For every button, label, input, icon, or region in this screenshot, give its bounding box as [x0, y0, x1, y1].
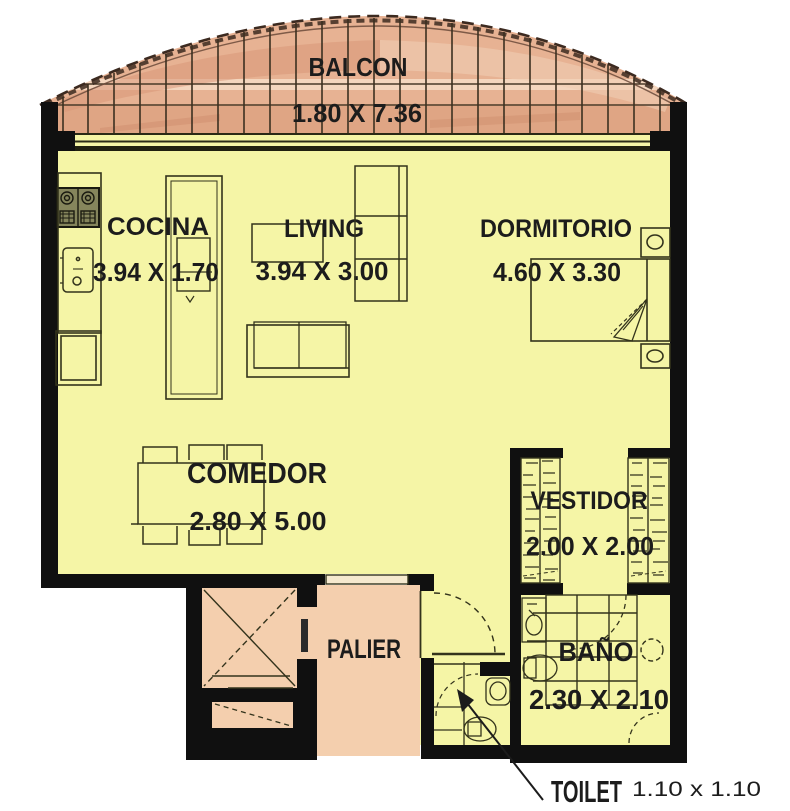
svg-text:TOILET: TOILET: [551, 774, 622, 809]
svg-text:BAÑO: BAÑO: [559, 636, 634, 667]
svg-text:3.94 X 1.70: 3.94 X 1.70: [93, 257, 219, 287]
svg-text:DORMITORIO: DORMITORIO: [480, 215, 632, 243]
svg-text:4.60 X 3.30: 4.60 X 3.30: [493, 257, 621, 287]
svg-text:COMEDOR: COMEDOR: [187, 458, 327, 490]
svg-text:2.00 X 2.00: 2.00 X 2.00: [526, 531, 654, 561]
svg-text:1.10 x 1.10: 1.10 x 1.10: [632, 778, 761, 801]
svg-text:2.80 X 5.00: 2.80 X 5.00: [190, 506, 327, 536]
svg-text:2.30 X 2.10: 2.30 X 2.10: [529, 684, 669, 715]
svg-text:BALCON: BALCON: [309, 52, 408, 82]
svg-text:1.80 X 7.36: 1.80 X 7.36: [292, 98, 422, 128]
svg-text:PALIER: PALIER: [327, 634, 401, 664]
svg-text:COCINA: COCINA: [107, 213, 209, 241]
svg-text:VESTIDOR: VESTIDOR: [531, 487, 648, 515]
svg-text:3.94 X 3.00: 3.94 X 3.00: [256, 256, 389, 286]
svg-text:LIVING: LIVING: [284, 215, 364, 243]
